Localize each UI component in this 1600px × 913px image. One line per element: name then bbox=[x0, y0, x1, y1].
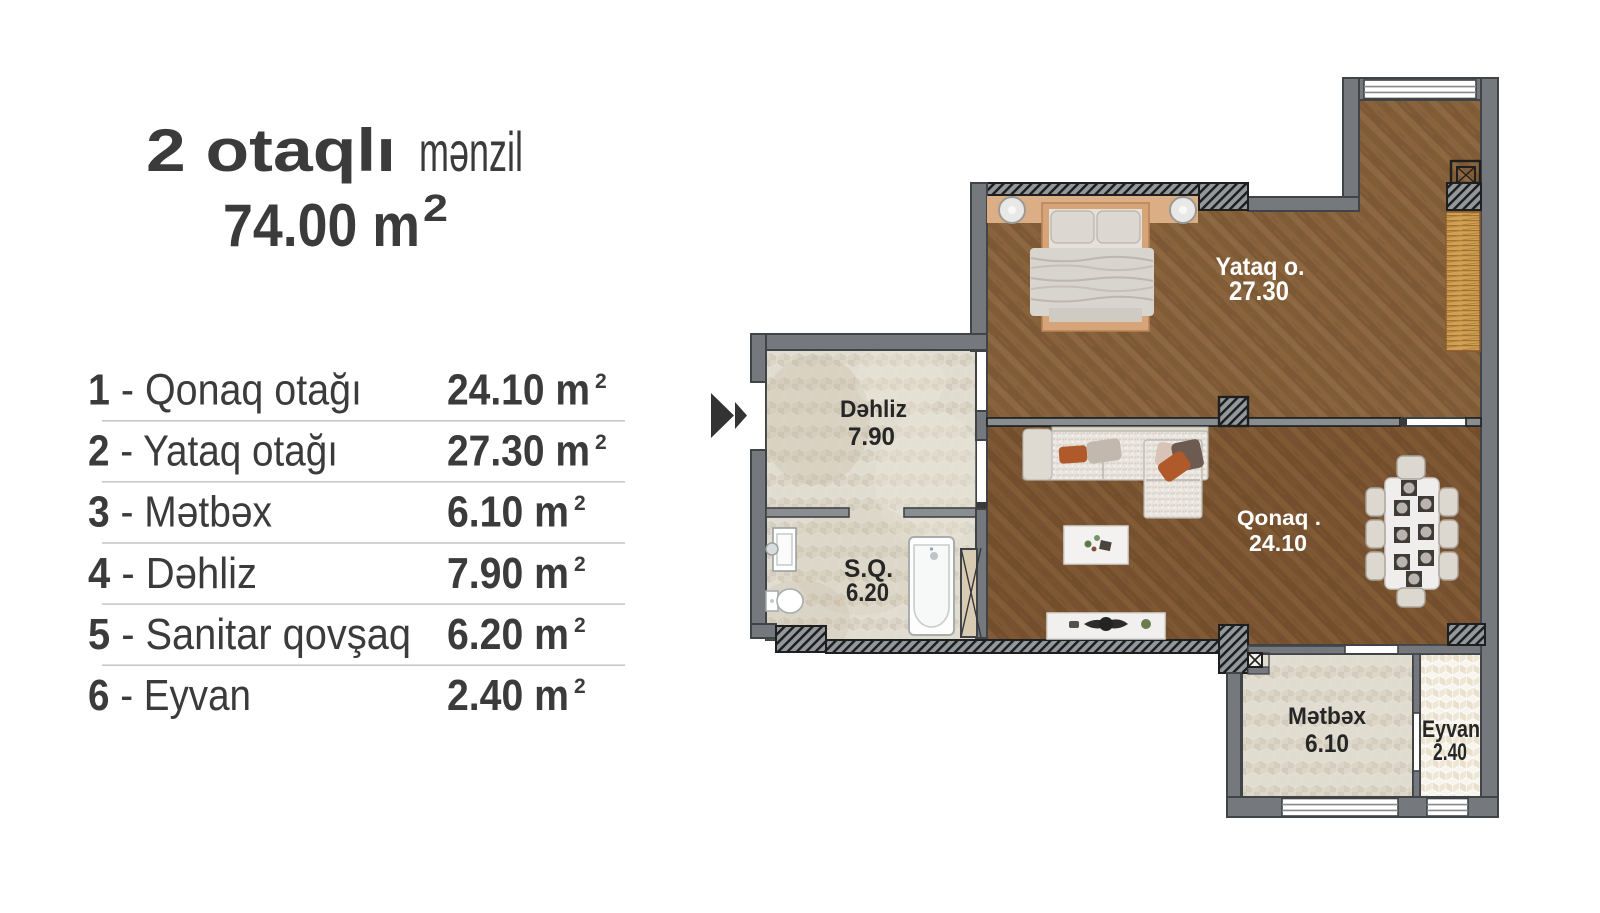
svg-text:2: 2 bbox=[574, 553, 586, 576]
svg-text:6.10 m: 6.10 m bbox=[447, 488, 569, 537]
svg-text:6 - Eyvan: 6 - Eyvan bbox=[88, 671, 251, 720]
svg-text:2 - Yataq otağı: 2 - Yataq otağı bbox=[88, 427, 338, 476]
svg-text:2: 2 bbox=[574, 614, 586, 637]
svg-text:5 - Sanitar qovşaq: 5 - Sanitar qovşaq bbox=[88, 610, 411, 659]
svg-text:27.30 m: 27.30 m bbox=[447, 427, 590, 476]
svg-text:2.40: 2.40 bbox=[1433, 739, 1467, 766]
svg-text:2: 2 bbox=[574, 492, 586, 515]
svg-text:2: 2 bbox=[595, 370, 607, 393]
svg-text:2: 2 bbox=[595, 431, 607, 454]
svg-text:Qonaq .: Qonaq . bbox=[1237, 507, 1321, 530]
svg-text:6.10: 6.10 bbox=[1305, 730, 1349, 758]
svg-text:1 - Qonaq otağı: 1 - Qonaq otağı bbox=[88, 366, 362, 415]
svg-text:2: 2 bbox=[423, 188, 448, 230]
svg-text:2: 2 bbox=[574, 675, 586, 698]
svg-text:2.40 m: 2.40 m bbox=[447, 671, 569, 720]
svg-text:Mətbəx: Mətbəx bbox=[1288, 703, 1367, 730]
svg-text:Dəhliz: Dəhliz bbox=[840, 396, 907, 423]
svg-text:7.90 m: 7.90 m bbox=[447, 549, 569, 598]
svg-text:2 otaqlımənzil: 2 otaqlımənzil bbox=[146, 117, 523, 184]
svg-text:27.30: 27.30 bbox=[1229, 276, 1289, 306]
svg-text:7.90: 7.90 bbox=[848, 423, 895, 451]
svg-text:4 - Dəhliz: 4 - Dəhliz bbox=[88, 549, 257, 598]
svg-text:3 - Mətbəx: 3 - Mətbəx bbox=[88, 488, 272, 537]
svg-text:24.10: 24.10 bbox=[1249, 530, 1307, 556]
svg-text:6.20 m: 6.20 m bbox=[447, 610, 569, 659]
svg-text:74.00 m: 74.00 m bbox=[223, 192, 420, 259]
svg-text:6.20: 6.20 bbox=[846, 579, 889, 607]
svg-text:24.10 m: 24.10 m bbox=[447, 366, 590, 415]
